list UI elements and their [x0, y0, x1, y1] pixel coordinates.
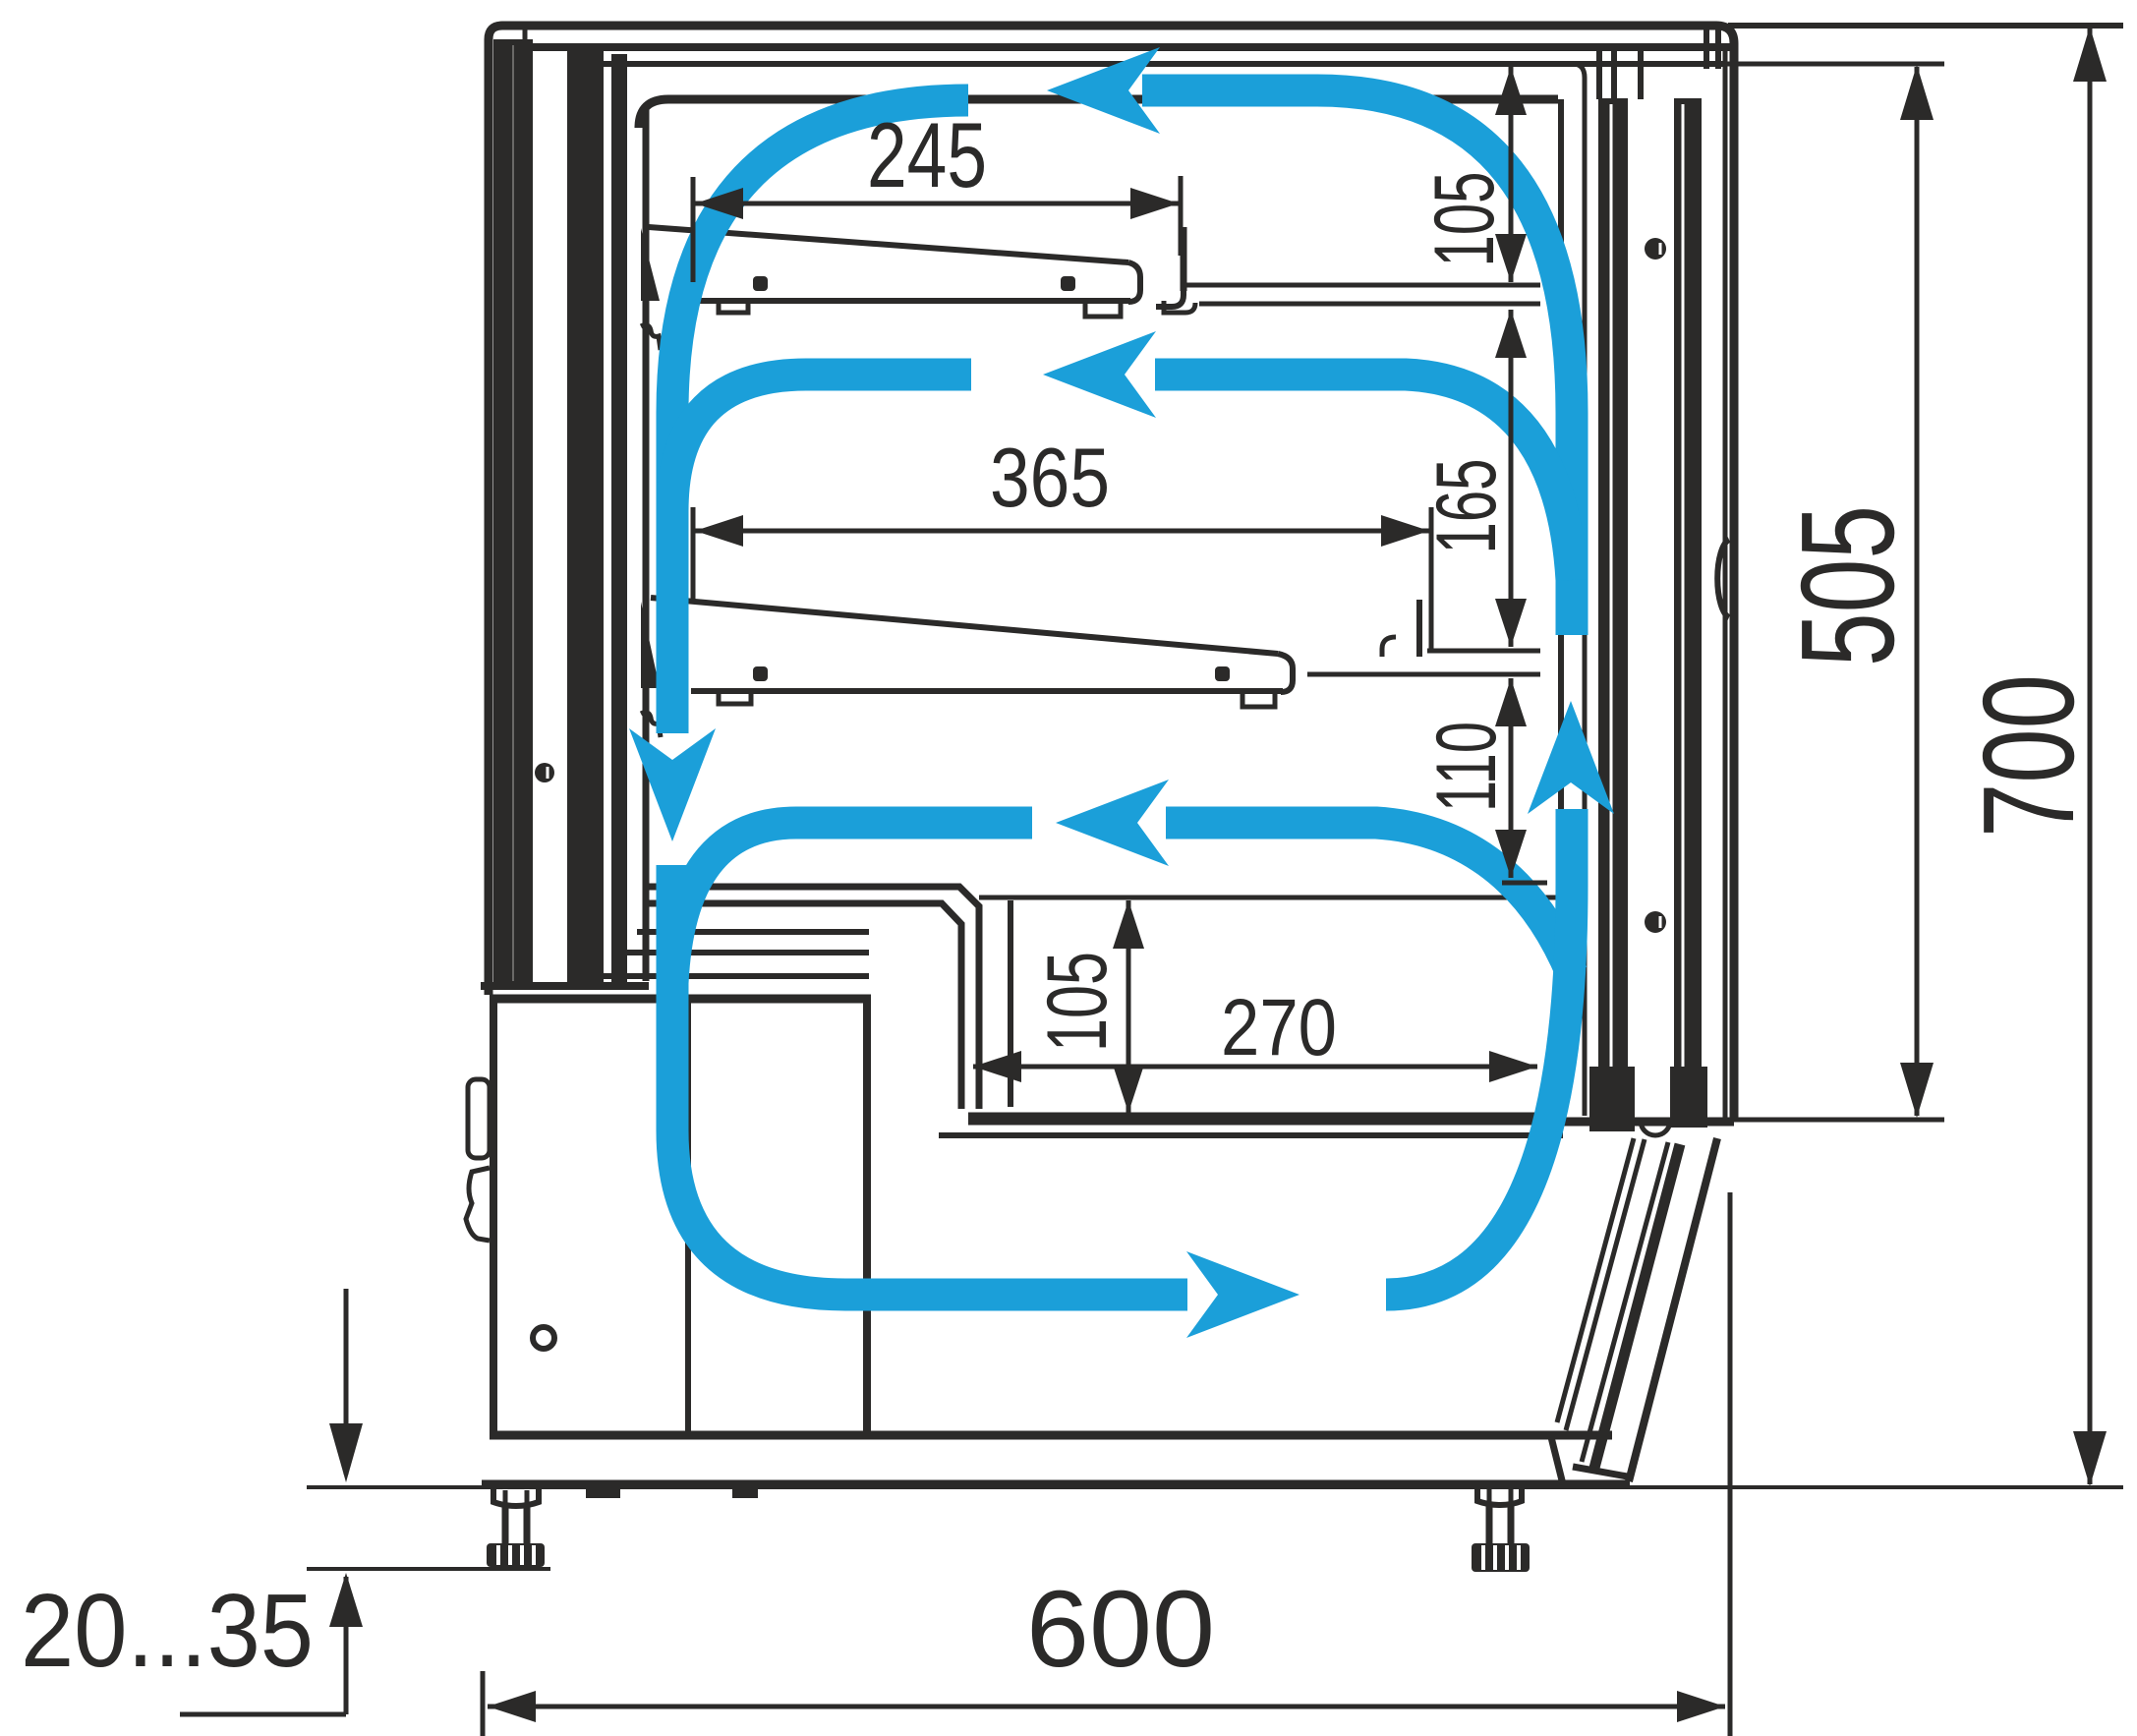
- svg-text:245: 245: [867, 103, 987, 206]
- svg-text:110: 110: [1419, 722, 1514, 812]
- svg-text:700: 700: [1956, 674, 2101, 838]
- svg-text:105: 105: [1030, 952, 1125, 1052]
- svg-text:165: 165: [1419, 459, 1514, 554]
- svg-text:20...35: 20...35: [21, 1573, 314, 1689]
- svg-text:600: 600: [1026, 1569, 1215, 1690]
- svg-text:505: 505: [1773, 505, 1922, 666]
- svg-text:365: 365: [990, 432, 1110, 525]
- svg-text:105: 105: [1417, 172, 1512, 267]
- svg-text:270: 270: [1221, 983, 1337, 1072]
